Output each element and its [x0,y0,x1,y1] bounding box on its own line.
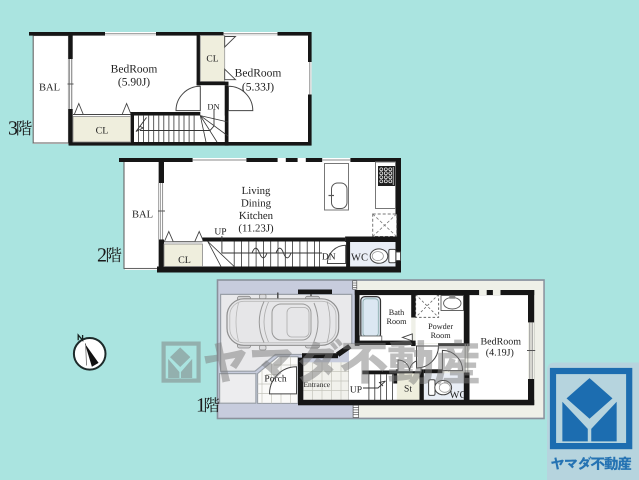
svg-text:WC: WC [351,253,368,264]
svg-text:Powder: Powder [428,322,453,331]
svg-text:Dining: Dining [241,198,272,210]
svg-text:Bath: Bath [389,308,404,317]
svg-text:St: St [404,385,412,395]
svg-text:BedRoom: BedRoom [235,68,282,80]
svg-text:Living: Living [242,185,271,197]
svg-text:2: 2 [97,245,107,267]
svg-text:BedRoom: BedRoom [111,64,158,76]
svg-text:DN: DN [322,253,336,263]
svg-text:1: 1 [196,395,206,417]
svg-text:Room: Room [386,317,407,326]
svg-text:BedRoom: BedRoom [481,337,522,348]
svg-text:CL: CL [96,126,109,137]
svg-text:BAL: BAL [132,210,153,221]
svg-text:Kitchen: Kitchen [239,210,274,222]
svg-text:3: 3 [8,118,18,140]
svg-text:BAL: BAL [39,83,60,94]
svg-text:Room: Room [431,331,452,340]
svg-text:(5.33J): (5.33J) [242,82,274,94]
svg-text:(5.90J): (5.90J) [118,77,150,89]
svg-text:DN: DN [207,102,219,112]
svg-text:CL: CL [206,55,218,65]
svg-text:UP: UP [350,385,362,395]
svg-text:(11.23J): (11.23J) [238,223,274,235]
svg-text:(4.19J): (4.19J) [486,348,514,359]
svg-text:CL: CL [178,255,191,266]
svg-text:UP: UP [214,228,226,238]
